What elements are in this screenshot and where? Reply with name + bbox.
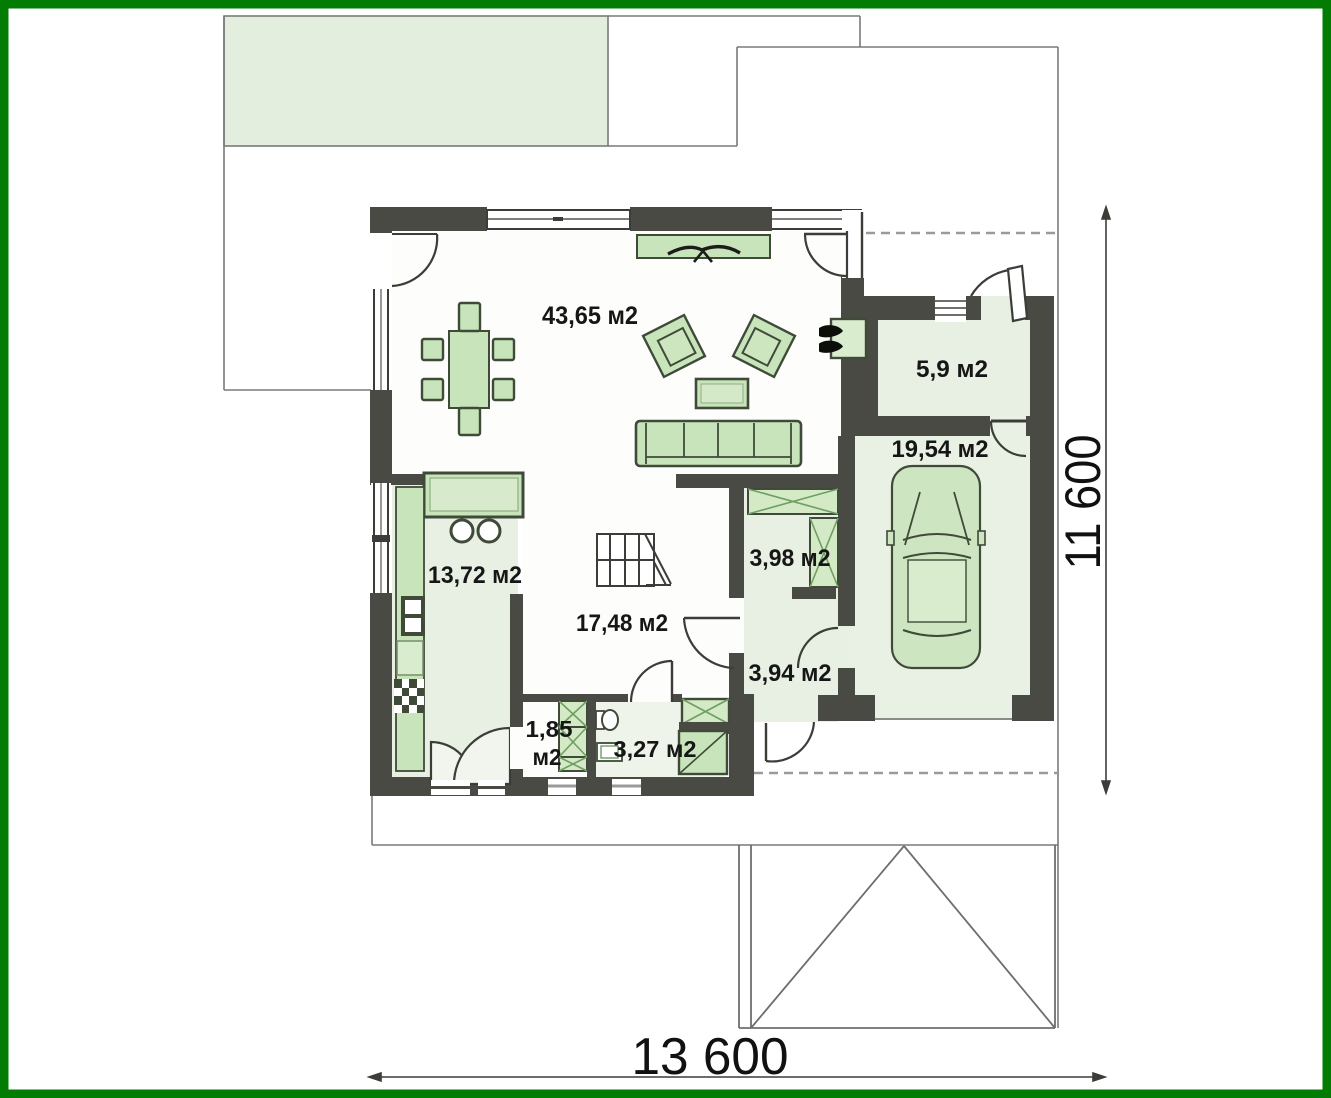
svg-text:17,48 м2: 17,48 м2 (576, 610, 668, 637)
svg-text:11 600: 11 600 (1055, 435, 1111, 570)
svg-text:3,98 м2: 3,98 м2 (750, 545, 831, 572)
svg-text:13,72 м2: 13,72 м2 (428, 562, 522, 589)
svg-text:1,85: 1,85 (526, 716, 573, 742)
svg-text:5,9 м2: 5,9 м2 (916, 356, 988, 383)
svg-text:м2: м2 (533, 744, 562, 770)
svg-text:3,27 м2: 3,27 м2 (614, 736, 697, 762)
svg-text:19,54 м2: 19,54 м2 (892, 436, 989, 463)
svg-text:3,94 м2: 3,94 м2 (749, 660, 832, 687)
svg-text:43,65 м2: 43,65 м2 (542, 302, 638, 330)
svg-text:13 600: 13 600 (632, 1028, 789, 1086)
